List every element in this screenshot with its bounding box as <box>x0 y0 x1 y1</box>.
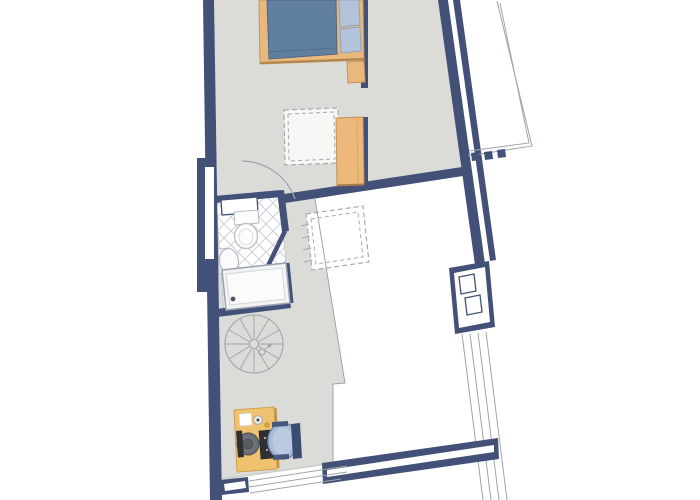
toilet-tank <box>234 210 259 225</box>
chimney-flue-1 <box>459 274 476 294</box>
railing-line <box>470 334 491 500</box>
railing-line <box>478 333 499 500</box>
railing-line <box>486 332 507 500</box>
floor-plan-page <box>0 0 700 500</box>
terrace-outline-inner <box>469 3 529 151</box>
wardrobe <box>336 117 364 185</box>
bed-pillow <box>340 27 361 53</box>
terrace-post <box>484 151 493 160</box>
southwest-window-line <box>250 479 341 493</box>
shower-drain <box>231 297 236 302</box>
office-chair-cushion <box>273 428 294 455</box>
desk-paper <box>239 413 252 426</box>
nightstand <box>347 61 365 83</box>
floor-plan-svg <box>0 0 700 500</box>
railing-line <box>462 334 483 500</box>
left-window <box>205 167 214 259</box>
bed-pillow <box>339 0 360 27</box>
monitor-ring <box>242 438 255 451</box>
keyboard-key-dot <box>264 437 266 439</box>
wardrobe-shadow <box>337 185 364 186</box>
desk-gadget-dot <box>256 418 259 421</box>
office-chair-armrest <box>272 421 288 427</box>
terrace-post <box>497 149 506 158</box>
skylight-dashed-outer <box>284 108 339 165</box>
chimney-flue-2 <box>465 295 482 315</box>
terrace-post <box>471 152 480 161</box>
keyboard-key-dot <box>266 449 268 451</box>
desk-accessory <box>265 423 269 427</box>
office-chair-armrest <box>273 454 289 460</box>
